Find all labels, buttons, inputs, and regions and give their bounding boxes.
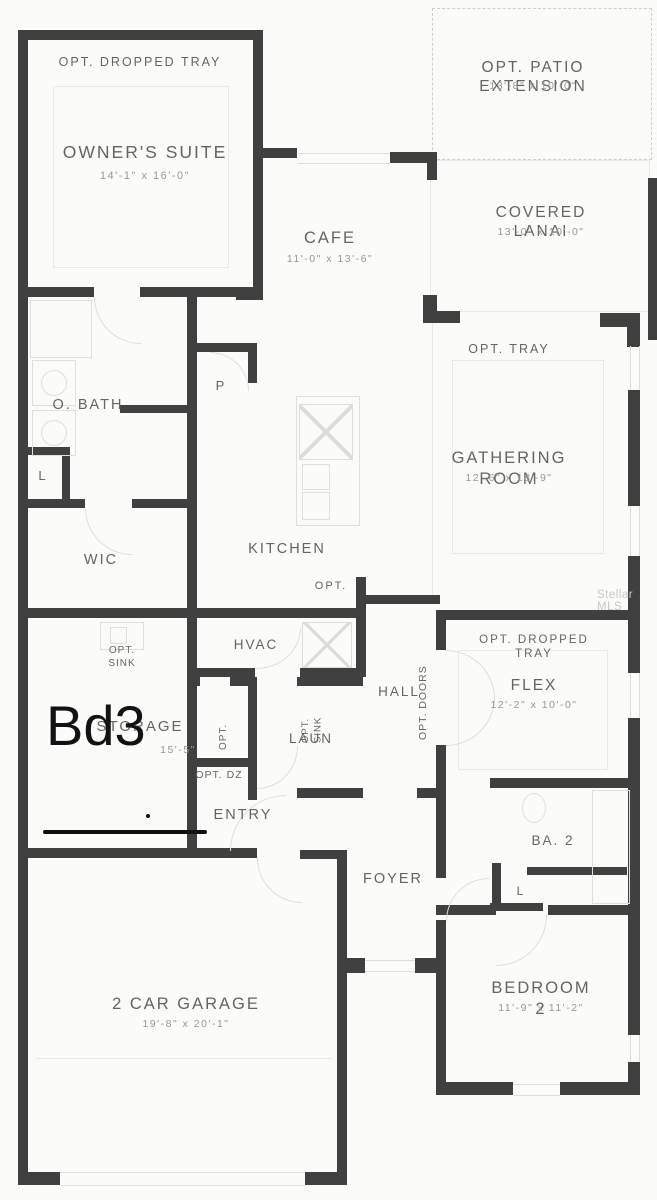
garage-door-opening	[60, 1172, 305, 1186]
wall	[18, 1172, 60, 1185]
wall	[560, 1082, 640, 1095]
wall	[628, 905, 640, 1035]
wall	[337, 973, 347, 1185]
cafe-gathering-divider-line	[432, 323, 433, 595]
wall	[427, 163, 437, 180]
window-opening	[630, 673, 640, 718]
wall	[18, 30, 28, 1182]
handwritten-bd3-note: Bd3	[46, 698, 146, 754]
storage-dims: 15'-5"	[160, 744, 196, 756]
wall	[390, 152, 437, 163]
wall	[187, 758, 257, 767]
wall	[436, 1082, 513, 1095]
door-swing-arc	[257, 746, 298, 789]
wall	[297, 788, 363, 798]
owners-suite-dims: 14'-1" x 16'-0"	[100, 170, 190, 182]
shower	[30, 300, 92, 358]
wall	[423, 311, 460, 323]
garage-label: 2 CAR GARAGE	[112, 994, 260, 1015]
wall	[300, 668, 363, 677]
door-swing-arc	[446, 878, 489, 921]
wall	[187, 615, 197, 858]
wall	[548, 905, 640, 915]
door-swing-arc	[257, 858, 302, 903]
opt-dz-label: OPT. DZ	[195, 769, 242, 782]
opt-dropped-tray-label-suite: OPT. DROPPED TRAY	[59, 55, 222, 71]
flex-label: FLEX	[511, 676, 558, 695]
refrigerator	[299, 404, 353, 460]
wic-label: WIC	[84, 551, 118, 569]
wall	[337, 850, 347, 973]
kitchen-sink	[302, 464, 330, 490]
wall	[356, 577, 366, 677]
kitchen-label: KITCHEN	[248, 540, 326, 558]
wall	[628, 718, 640, 790]
wall	[263, 148, 297, 158]
wall	[628, 390, 640, 506]
wall	[18, 287, 94, 297]
linen-closet-label: L	[38, 468, 47, 484]
bath2-label: BA. 2	[531, 833, 574, 850]
wall	[436, 612, 446, 650]
floor-plan: OPT. DROPPED TRAY OWNER'S SUITE 14'-1" x…	[0, 0, 657, 1200]
sink-bowl	[41, 420, 67, 446]
window-opening	[298, 153, 390, 164]
storage-opt-sink-label: OPT. SINK	[108, 645, 135, 670]
toilet	[522, 793, 546, 823]
sink-bowl	[41, 370, 67, 396]
door-swing-arc	[94, 297, 141, 344]
hvac-label: HVAC	[234, 637, 279, 654]
wall	[197, 343, 250, 352]
door-swing-arc	[85, 508, 132, 555]
entry-label: ENTRY	[214, 806, 273, 824]
covered-lanai-dims: 13'-0" x 10'-0"	[497, 226, 584, 238]
wall	[305, 1172, 347, 1185]
tub-shower	[592, 790, 630, 904]
opt-tray-label: OPT. TRAY	[468, 342, 549, 358]
window-opening	[630, 346, 640, 390]
cafe-label: CAFE	[304, 228, 356, 249]
wall	[436, 745, 446, 790]
opt-patio-extension-dims: 13'-8" x 10'-0"	[489, 80, 576, 92]
cafe-dims: 11'-0" x 13'-6"	[287, 253, 373, 265]
wall	[120, 405, 192, 413]
wall	[28, 499, 85, 508]
wall	[248, 767, 257, 800]
laundry-label: LAUN	[289, 731, 333, 748]
wall	[628, 322, 640, 346]
opt-sink-bowl	[110, 627, 127, 644]
wall	[197, 668, 255, 677]
foyer-label: FOYER	[363, 870, 423, 888]
gathering-room-dims: 12'-6" x 18'-9"	[465, 472, 552, 484]
closet-opt-label: OPT.	[217, 690, 230, 750]
wall	[18, 848, 257, 858]
owners-bath-label: O. BATH	[53, 396, 124, 414]
owners-suite-label: OWNER'S SUITE	[63, 142, 228, 164]
hall-label: HALL	[378, 684, 420, 701]
pantry-label: P	[216, 378, 227, 394]
linen2-label: L	[517, 884, 526, 899]
flex-opt-label: OPT. DROPPED TRAY	[473, 633, 596, 662]
wall	[140, 287, 263, 297]
wall	[248, 677, 257, 765]
handwritten-underline	[43, 830, 207, 834]
opt-doors-label: OPT. DOORS	[417, 650, 431, 740]
watermark: Stellar MLS	[597, 589, 657, 613]
wall	[18, 30, 263, 40]
handwritten-dot	[146, 814, 150, 818]
kitchen-cooktop	[302, 492, 330, 520]
garage-dims: 19'-8" x 20'-1"	[142, 1018, 229, 1030]
wall	[356, 595, 440, 604]
wall	[187, 293, 197, 615]
wall	[132, 499, 192, 508]
wall	[648, 178, 657, 340]
kitchen-opt-label: OPT.	[315, 580, 347, 594]
window-opening	[630, 506, 640, 556]
wall	[337, 958, 365, 973]
wall	[490, 903, 543, 911]
garage-floor-line	[36, 1058, 332, 1059]
hvac-unit	[302, 622, 352, 668]
wall	[492, 863, 501, 908]
bedroom2-dims: 11'-9" x 11'-2"	[498, 1002, 584, 1014]
wall	[248, 343, 257, 383]
window-opening	[365, 960, 415, 972]
wall	[436, 920, 446, 1090]
door-swing-arc	[496, 915, 547, 966]
window-opening	[513, 1084, 560, 1096]
window-opening	[630, 1035, 640, 1062]
wall	[490, 778, 640, 788]
wall	[436, 788, 446, 878]
wall	[253, 30, 263, 298]
flex-dims: 12'-2" x 10'-0"	[490, 699, 577, 711]
